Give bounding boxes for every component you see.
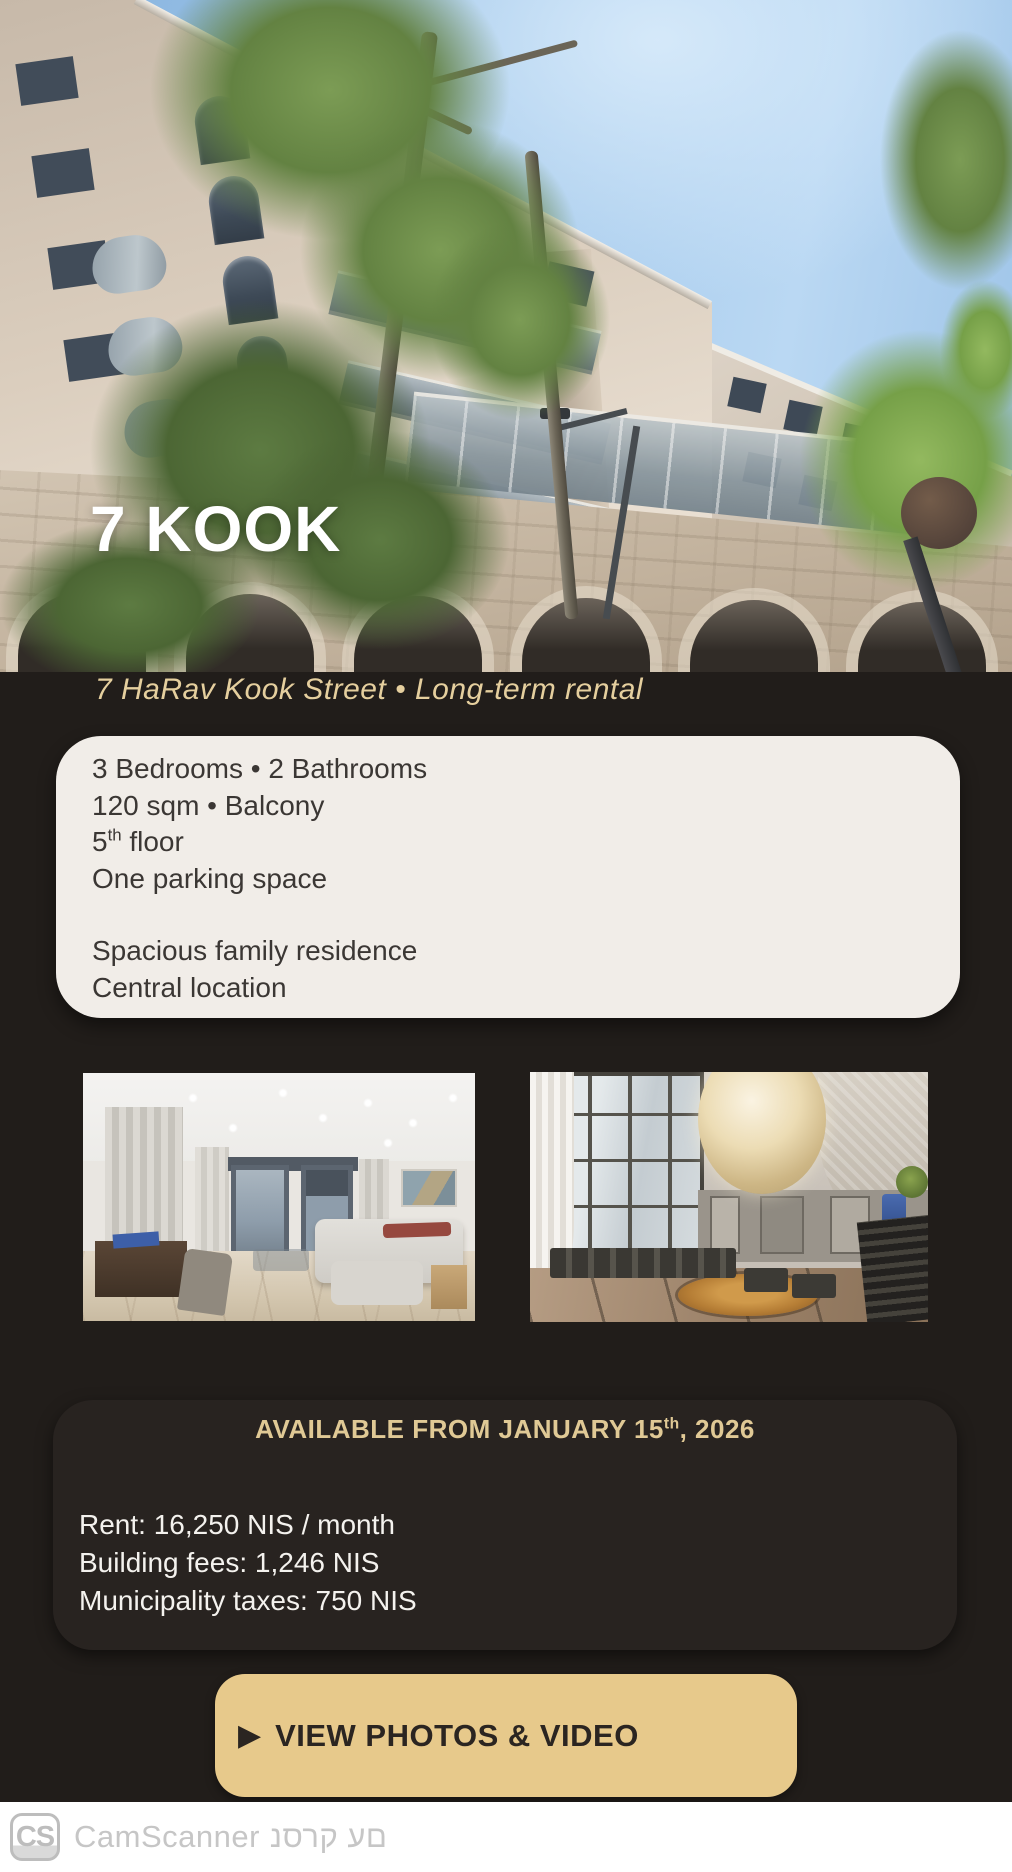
date-ordinal-suffix: th (664, 1415, 680, 1432)
throw-blanket (383, 1222, 451, 1238)
building-fees-line: Building fees: 1,246 NIS (79, 1544, 417, 1582)
scanned-with-hebrew-text: נסרק עם (270, 1819, 388, 1854)
camscanner-watermark-text: CamScannerנסרק עם (74, 1819, 387, 1855)
reception-desk (857, 1214, 928, 1322)
lobby-door (760, 1196, 804, 1254)
lobby-door (710, 1196, 740, 1254)
camscanner-logo-letters: CS (16, 1821, 54, 1854)
ottoman (744, 1268, 788, 1292)
sofa-chaise (331, 1261, 423, 1305)
view-photos-video-button[interactable]: ▶ VIEW PHOTOS & VIDEO (215, 1674, 797, 1797)
detail-parking: One parking space (92, 861, 930, 898)
lobby-photo (530, 1072, 928, 1322)
window (15, 56, 78, 106)
camscanner-watermark-bar: CS CamScannerנסרק עם (0, 1802, 1012, 1872)
property-title: 7 KOOK (90, 492, 341, 566)
lobby-bench (550, 1248, 736, 1278)
tree-foliage (940, 280, 1012, 420)
coffee-table (253, 1249, 309, 1271)
availability-card: AVAILABLE FROM JANUARY 15th, 2026 Rent: … (53, 1400, 957, 1650)
detail-description-1: Spacious family residence (92, 933, 930, 970)
side-table (431, 1265, 467, 1309)
rental-flyer-page: 7 KOOK 7 HaRav Kook Street • Long-term r… (0, 0, 1012, 1872)
balcony-door (231, 1165, 289, 1261)
detail-floor: 5th floor (92, 824, 930, 861)
spacer (92, 897, 930, 933)
building-exterior-photo: 7 KOOK (0, 0, 1012, 672)
cta-button-label: VIEW PHOTOS & VIDEO (275, 1718, 639, 1754)
tree-foliage (880, 30, 1012, 290)
pricing-lines: Rent: 16,250 NIS / month Building fees: … (79, 1506, 417, 1620)
desk (95, 1241, 187, 1297)
detail-bedrooms-bathrooms: 3 Bedrooms • 2 Bathrooms (92, 751, 930, 788)
flower-arrangement (896, 1166, 928, 1198)
sphere-chandelier (698, 1072, 826, 1194)
wall-painting (401, 1169, 457, 1207)
municipality-taxes-line: Municipality taxes: 750 NIS (79, 1582, 417, 1620)
camscanner-logo: CS (10, 1813, 60, 1861)
window (31, 148, 94, 198)
ottoman (792, 1274, 836, 1298)
detail-description-2: Central location (92, 970, 930, 1007)
rent-line: Rent: 16,250 NIS / month (79, 1506, 417, 1544)
chair (177, 1248, 233, 1316)
property-details-card: 3 Bedrooms • 2 Bathrooms 120 sqm • Balco… (56, 736, 960, 1018)
play-icon: ▶ (238, 1721, 261, 1751)
detail-size-balcony: 120 sqm • Balcony (92, 788, 930, 825)
floor-ordinal-suffix: th (108, 826, 122, 845)
living-room-photo (83, 1073, 475, 1321)
address-subtitle: 7 HaRav Kook Street • Long-term rental (95, 673, 643, 707)
availability-heading: AVAILABLE FROM JANUARY 15th, 2026 (53, 1414, 957, 1445)
